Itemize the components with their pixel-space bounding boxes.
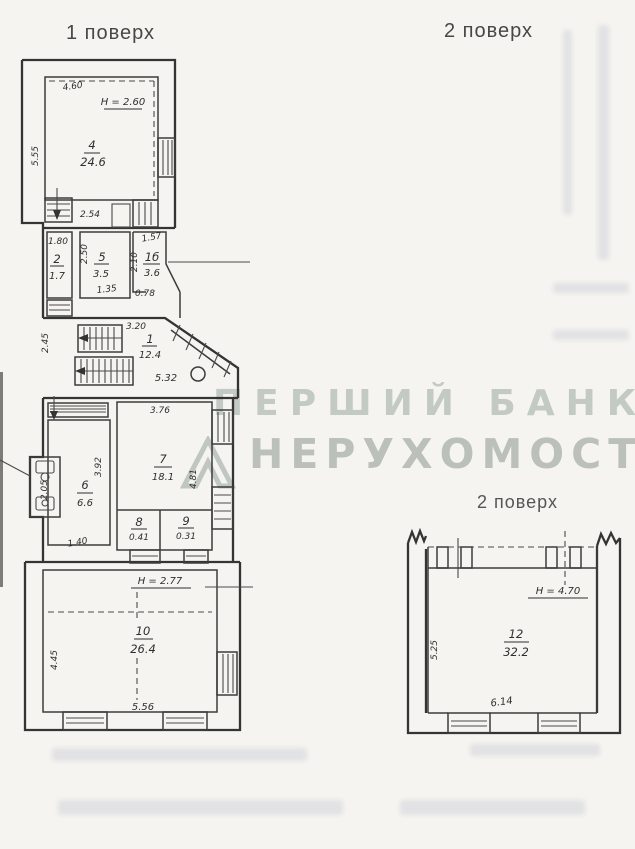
- dim-label: 5.25: [430, 640, 440, 660]
- dim-label: 1.35: [96, 284, 117, 296]
- bottom-window: [538, 713, 580, 733]
- floorplan-drawing: 4.60 H = 2.60 5.55 4 24.6 2.54 1.80 2 1.…: [0, 0, 635, 849]
- room-number: 2: [53, 252, 60, 266]
- exterior-stair-band: [171, 325, 231, 377]
- room-number: 7: [159, 452, 167, 466]
- room4-walls: [45, 77, 158, 200]
- wc-leader-line: [0, 460, 30, 476]
- dim-label: 5.56: [132, 702, 154, 713]
- dim-label: 3.92: [94, 457, 104, 477]
- dim-label: 1.40: [67, 536, 89, 549]
- dim-label: 2.10: [130, 252, 140, 272]
- floor2-demolished-wall: [428, 531, 597, 585]
- room-area: 32.2: [503, 645, 529, 659]
- floor2-plan: H = 4.70 12 32.2 5.25 6.14: [408, 531, 620, 733]
- room6-walls: [48, 420, 110, 545]
- dim-label: 2.05: [40, 480, 50, 500]
- room-area: 3.5: [93, 269, 109, 280]
- stair-arrow-icon: [78, 334, 88, 342]
- chimney-shaft: [158, 138, 175, 177]
- column-symbol: [191, 367, 205, 381]
- bottom-window: [63, 712, 107, 730]
- dim-label: 6.14: [490, 696, 514, 710]
- room-area: 0.41: [129, 533, 149, 543]
- stair-arrow-icon: [75, 367, 85, 375]
- stairs-down-hatch: [48, 396, 108, 420]
- room-area: 0.31: [176, 532, 196, 542]
- vent-shaft: [112, 200, 158, 227]
- room-number: 4: [88, 138, 95, 152]
- dim-label: 1.80: [48, 237, 68, 247]
- dim-label: 3.20: [126, 322, 146, 332]
- dim-label: 5.55: [31, 146, 41, 166]
- room-area: 26.4: [130, 642, 156, 656]
- entry-arrow-icon: [53, 210, 61, 220]
- right-wall-window: [212, 487, 233, 529]
- bottom-window: [448, 713, 490, 733]
- room-number: 1: [146, 332, 153, 346]
- stairs-upper-flight: [78, 325, 122, 352]
- room-area: 3.6: [144, 268, 160, 279]
- room-number: 1б: [145, 250, 159, 264]
- room-area: 1.7: [49, 271, 66, 282]
- room-area: 6.6: [77, 498, 93, 509]
- dim-label: 4.60: [62, 81, 84, 94]
- room-number: 5: [98, 250, 105, 264]
- right-wall-window: [212, 410, 233, 444]
- floor2-piers: [437, 547, 581, 568]
- room-number: 10: [136, 624, 151, 638]
- room-area: 24.6: [80, 155, 106, 169]
- floor1-plan: 4.60 H = 2.60 5.55 4 24.6 2.54 1.80 2 1.…: [0, 60, 253, 730]
- rooms8-9-walls: [117, 510, 212, 550]
- room10-walls: [43, 570, 217, 712]
- stair-arrow-icon: [50, 411, 58, 420]
- height-label: H = 2.77: [138, 576, 183, 587]
- room-area: 18.1: [152, 472, 174, 483]
- dim-label: 3.76: [150, 406, 170, 416]
- toilet-icon: [36, 461, 54, 481]
- height-label: H = 4.70: [536, 586, 581, 597]
- dim-label: 2.54: [80, 210, 100, 220]
- dim-label: 2.45: [41, 333, 51, 353]
- dim-label: 2.50: [80, 244, 90, 264]
- stairs-lower-flight: [75, 357, 133, 385]
- floor1-outer-walls: [22, 60, 240, 730]
- room-number: 12: [509, 627, 524, 641]
- bottom-window: [163, 712, 207, 730]
- room-number: 8: [135, 515, 142, 529]
- room-number: 9: [182, 514, 189, 528]
- dim-label: 1.57: [141, 231, 163, 244]
- passage-shaft: [47, 300, 72, 316]
- dim-label: 0.78: [135, 289, 155, 299]
- scanned-floorplan-page: ПЕРШИЙ БАНК НЕРУХОМОСТІ 1 поверх 2 повер…: [0, 0, 635, 849]
- dim-label: 5.32: [155, 373, 177, 384]
- height-label: H = 2.60: [101, 97, 146, 108]
- room-number: 6: [81, 478, 88, 492]
- dim-label: 4.45: [50, 650, 60, 670]
- right-shaft: [217, 652, 237, 695]
- entry-steps: [45, 188, 72, 222]
- dim-label: 4.81: [189, 469, 199, 489]
- room-area: 12.4: [139, 350, 161, 361]
